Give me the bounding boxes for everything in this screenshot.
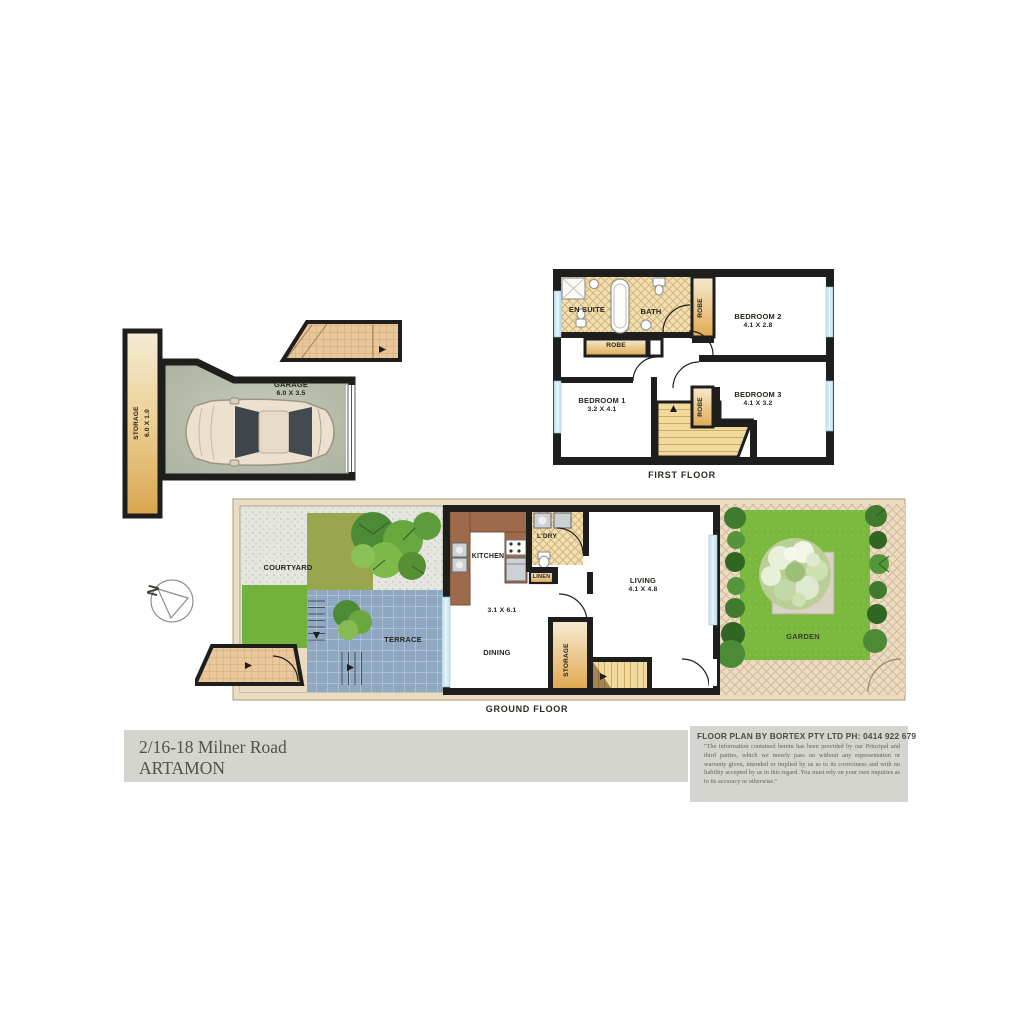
room-label-storage-ground: STORAGE <box>563 625 577 695</box>
room-label-robe-hall: ROBE <box>586 342 646 350</box>
room-label-living: LIVING 4.1 X 4.8 <box>598 576 688 595</box>
floor-plan-sheet: EN SUITE BATH ROBE ROBE ROBE BEDROOM 2 4… <box>0 0 1024 1024</box>
room-label-courtyard: COURTYARD <box>243 563 333 573</box>
garage-graphic <box>120 318 410 523</box>
disclaimer-box: FLOOR PLAN BY BORTEX PTY LTD PH: 0414 92… <box>690 726 908 802</box>
room-label-bath: BATH <box>629 307 673 317</box>
room-label-robe-top: ROBE <box>697 278 709 338</box>
bedroom1-dims: 3.2 X 4.1 <box>561 406 643 415</box>
car-top-view <box>186 398 335 466</box>
ground-floor-plan: COURTYARD TERRACE KITCHEN L'DRY LINEN 3.… <box>195 496 910 704</box>
floor-plan-credit: FLOOR PLAN BY BORTEX PTY LTD PH: 0414 92… <box>690 726 908 741</box>
first-floor-plan: EN SUITE BATH ROBE ROBE ROBE BEDROOM 2 4… <box>553 269 834 465</box>
room-label-robe-mid: ROBE <box>697 377 709 437</box>
address-line1: 2/16-18 Milner Road <box>139 737 688 758</box>
storage-dims: 6.0 X 1.0 <box>142 378 153 468</box>
room-label-storage-garage: STORAGE 6.0 X 1.0 <box>131 378 155 468</box>
garage-plan: GARAGE 6.0 X 3.5 STORAGE 6.0 X 1.0 <box>120 318 410 523</box>
room-label-bedroom2: BEDROOM 2 4.1 X 2.8 <box>713 312 803 331</box>
compass: N <box>143 572 201 630</box>
bedroom2-dims: 4.1 X 2.8 <box>713 322 803 331</box>
first-floor-caption: FIRST FLOOR <box>552 470 812 480</box>
first-floor-graphic <box>553 269 834 465</box>
room-dims-dining: 3.1 X 6.1 <box>467 607 537 616</box>
bedroom1-name: BEDROOM 1 <box>561 396 643 406</box>
bedroom3-name: BEDROOM 3 <box>713 390 803 400</box>
bedroom2-name: BEDROOM 2 <box>713 312 803 322</box>
address-bar: 2/16-18 Milner Road ARTAMON <box>124 730 688 782</box>
room-label-garden: GARDEN <box>763 632 843 642</box>
ground-floor-caption: GROUND FLOOR <box>397 704 657 714</box>
living-dims: 4.1 X 4.8 <box>598 586 688 595</box>
bedroom3-dims: 4.1 X 3.2 <box>713 400 803 409</box>
storage-name: STORAGE <box>131 378 142 468</box>
living-name: LIVING <box>598 576 688 586</box>
room-label-en-suite: EN SUITE <box>557 305 617 315</box>
address-line2: ARTAMON <box>139 758 688 779</box>
room-label-bedroom1: BEDROOM 1 3.2 X 4.1 <box>561 396 643 415</box>
address-text: 2/16-18 Milner Road ARTAMON <box>124 730 688 779</box>
ground-floor-graphic <box>195 496 910 704</box>
garage-name: GARAGE <box>246 380 336 390</box>
room-label-laundry: L'DRY <box>522 533 572 541</box>
room-label-linen: LINEN <box>525 574 558 581</box>
disclaimer-text: "The information contained herein has be… <box>704 743 900 787</box>
room-label-kitchen: KITCHEN <box>457 552 519 561</box>
garage-dims: 6.0 X 3.5 <box>246 390 336 399</box>
room-label-terrace: TERRACE <box>363 635 443 645</box>
room-label-bedroom3: BEDROOM 3 4.1 X 3.2 <box>713 390 803 409</box>
room-label-dining: DINING <box>462 648 532 658</box>
room-label-garage: GARAGE 6.0 X 3.5 <box>246 380 336 399</box>
garden-tree <box>759 538 831 610</box>
